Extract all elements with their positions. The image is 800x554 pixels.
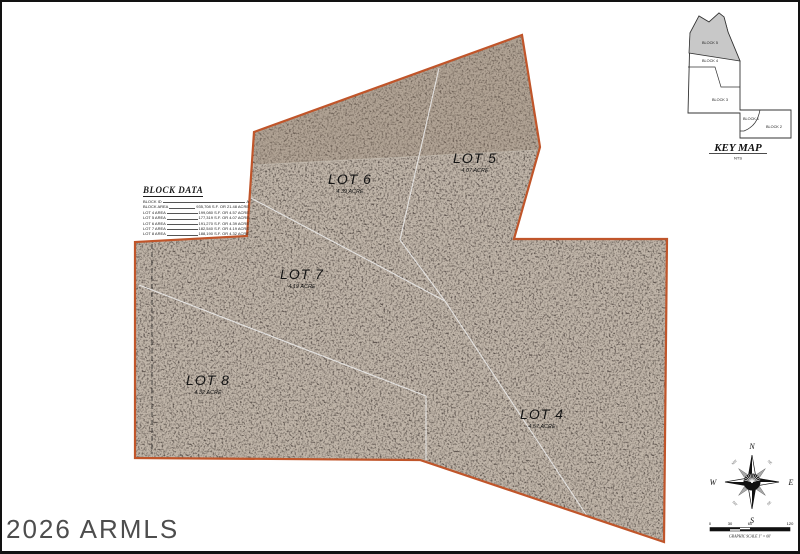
block-data-title: BLOCK DATA: [143, 185, 203, 197]
leader-line: [167, 224, 198, 225]
scale-tick-60: 60: [748, 521, 753, 526]
leader-line: [169, 208, 195, 209]
compass-center-dot: [751, 481, 753, 483]
compass-southwest-label: SW: [731, 500, 738, 507]
key-map-block4-label: BLOCK 4: [702, 59, 718, 63]
armls-watermark: 2026 ARMLS: [6, 514, 179, 545]
key-map-block1-label: BLOCK 1: [743, 117, 759, 121]
lot7-area-label: 4.19 ACRE: [288, 284, 316, 290]
lot8-label: LOT 8: [186, 372, 230, 388]
lot8-area-label: 4.32 ACRE: [194, 390, 222, 396]
graphic-scale-bar: 0 30 60 120 GRAPHIC SCALE 1" = 60': [702, 518, 798, 544]
plat-map-page: LOT 5 4.07 ACRE LOT 6 4.39 ACRE LOT 7 4.…: [0, 0, 800, 554]
key-map-scale-note: NTS: [734, 156, 742, 161]
leader-line: [167, 235, 198, 236]
key-map-block5-label: BLOCK 5: [702, 41, 718, 45]
scale-bar-segments: [710, 528, 790, 532]
leader-line: [163, 202, 246, 203]
table-row: LOT 8 AREA 188,190 S.F. OR 4.32 ACRE: [143, 231, 249, 236]
lot6-label: LOT 6: [328, 171, 372, 187]
leader-line: [167, 229, 198, 230]
scale-tick-0: 0: [709, 521, 712, 526]
lot5-label: LOT 5: [453, 150, 497, 166]
compass-west-label: W: [710, 478, 718, 487]
key-map-block3-label: BLOCK 3: [712, 98, 728, 102]
lot7-label: LOT 7: [280, 266, 324, 282]
lot5-area-label: 4.07 ACRE: [461, 168, 489, 174]
compass-northwest-label: NW: [731, 458, 738, 465]
compass-rose-icon: N S W E NE SE SW NW: [706, 440, 798, 526]
lot4-label: LOT 4: [520, 406, 564, 422]
scale-tick-120: 120: [787, 521, 794, 526]
compass-east-label: E: [788, 478, 794, 487]
leader-line: [167, 213, 198, 214]
block-data-table: BLOCK DATA BLOCK ID A BLOCK AREA 935,708…: [143, 180, 249, 237]
lot4-area-label: 4.57 ACRE: [528, 424, 556, 430]
leader-line: [167, 219, 198, 220]
key-map-block2-label: BLOCK 2: [766, 125, 782, 129]
compass-southeast-label: SE: [766, 500, 773, 507]
compass-northeast-label: NE: [767, 459, 774, 466]
scale-caption: GRAPHIC SCALE 1" = 60': [729, 535, 771, 539]
scale-tick-30: 30: [728, 521, 733, 526]
lot6-area-label: 4.39 ACRE: [336, 189, 364, 195]
compass-north-label: N: [748, 442, 755, 451]
key-map-block5-shaded: [689, 13, 740, 61]
row-label: LOT 8 AREA: [143, 231, 166, 236]
row-value: 188,190 S.F. OR 4.32 ACRE: [199, 231, 249, 236]
aerial-imagery: [122, 22, 682, 554]
key-map-title: KEY MAP: [713, 142, 762, 154]
key-map: BLOCK 5 BLOCK 4 BLOCK 3 BLOCK 1 BLOCK 2 …: [678, 10, 798, 162]
